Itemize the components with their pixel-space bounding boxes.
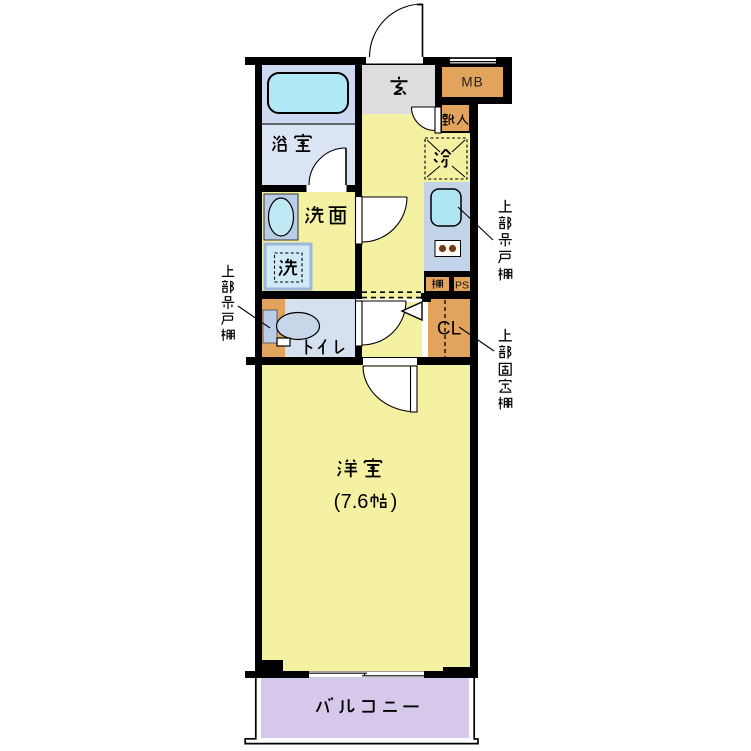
svg-text:PS: PS (455, 280, 469, 292)
svg-text:): ) (391, 491, 398, 513)
svg-text:MB: MB (461, 75, 483, 90)
svg-text:CL: CL (437, 319, 461, 340)
svg-text:7.6: 7.6 (341, 491, 369, 513)
